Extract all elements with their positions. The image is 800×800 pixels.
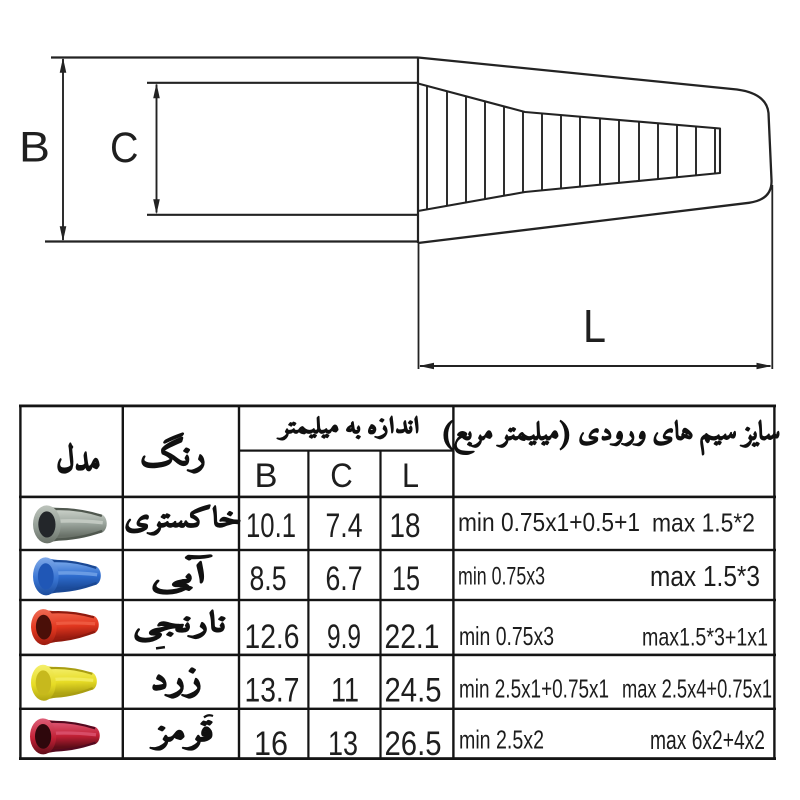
svg-text:max 1.5*3: max 1.5*3 (650, 561, 760, 593)
svg-text:9.9: 9.9 (327, 618, 361, 656)
svg-text:16: 16 (254, 725, 288, 763)
svg-text:min 0.75x3: min 0.75x3 (458, 563, 545, 591)
svg-text:22.1: 22.1 (385, 618, 440, 656)
svg-text:min 0.75x3: min 0.75x3 (459, 621, 554, 651)
svg-text:max 1.5*2: max 1.5*2 (652, 508, 755, 538)
svg-text:13.7: 13.7 (245, 672, 300, 710)
svg-text:24.5: 24.5 (385, 672, 442, 710)
svg-text:8.5: 8.5 (250, 560, 287, 598)
svg-text:11: 11 (331, 672, 359, 710)
svg-text:min 2.5x1+0.75x1: min 2.5x1+0.75x1 (459, 674, 609, 704)
svg-text:B: B (255, 457, 278, 495)
svg-text:max 2.5x4+0.75x1: max 2.5x4+0.75x1 (622, 674, 772, 704)
svg-text:min 0.75x1+0.5+1: min 0.75x1+0.5+1 (458, 507, 640, 537)
svg-text:C: C (330, 457, 353, 495)
svg-text:L: L (583, 300, 606, 352)
svg-text:12.6: 12.6 (245, 618, 300, 656)
svg-text:13: 13 (328, 725, 358, 763)
svg-text:B: B (19, 125, 50, 172)
svg-text:7.4: 7.4 (326, 507, 363, 545)
svg-text:18: 18 (390, 507, 421, 545)
svg-text:min 2.5x2: min 2.5x2 (459, 725, 544, 755)
svg-text:10.1: 10.1 (246, 507, 296, 545)
svg-text:C: C (110, 124, 139, 172)
svg-text:max1.5*3+1x1: max1.5*3+1x1 (642, 624, 768, 652)
svg-text:6.7: 6.7 (326, 560, 363, 598)
svg-text:15: 15 (392, 560, 420, 598)
svg-text:26.5: 26.5 (385, 725, 442, 763)
svg-text:L: L (402, 457, 419, 495)
svg-text:max 6x2+4x2: max 6x2+4x2 (650, 725, 765, 755)
